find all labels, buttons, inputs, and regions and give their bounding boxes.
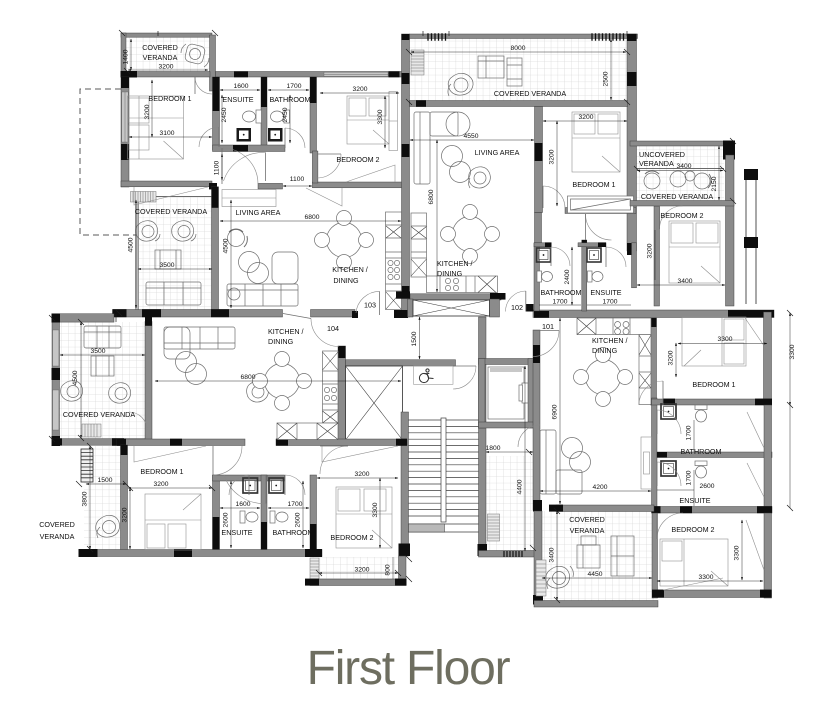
svg-text:4500: 4500 [128,237,135,252]
svg-text:8000: 8000 [511,45,526,52]
svg-text:3300: 3300 [372,502,379,517]
svg-text:3500: 3500 [91,348,106,355]
svg-text:6800: 6800 [428,189,435,204]
svg-text:LIVING AREA: LIVING AREA [475,148,520,157]
svg-text:BATHROOM: BATHROOM [270,95,311,104]
svg-text:COVERED VERANDA: COVERED VERANDA [494,89,566,98]
svg-text:DINING: DINING [333,276,359,285]
svg-text:VERANDA: VERANDA [639,159,674,168]
svg-text:LIVING AREA: LIVING AREA [236,208,281,217]
svg-text:2500: 2500 [603,71,610,86]
svg-text:104: 104 [327,324,339,333]
svg-text:BATHROOM: BATHROOM [273,528,314,537]
svg-text:ENSUITE: ENSUITE [590,288,621,297]
svg-text:KITCHEN /: KITCHEN / [268,327,304,336]
svg-text:1100: 1100 [290,176,305,183]
svg-text:6800: 6800 [305,214,320,221]
svg-text:COVERED VERANDA: COVERED VERANDA [63,410,135,419]
svg-text:3400: 3400 [549,547,556,562]
svg-text:ENSUITE: ENSUITE [221,528,252,537]
svg-text:DINING: DINING [592,346,618,355]
svg-text:1600: 1600 [234,83,249,90]
svg-text:3200: 3200 [159,64,174,71]
svg-text:KITCHEN /: KITCHEN / [592,336,628,345]
svg-text:6900: 6900 [552,404,559,419]
svg-text:KITCHEN /: KITCHEN / [332,265,368,274]
svg-text:3300: 3300 [718,336,733,343]
svg-text:800: 800 [385,564,392,575]
svg-text:3300: 3300 [699,574,714,581]
svg-text:BEDROOM 1: BEDROOM 1 [572,180,615,189]
svg-text:VERANDA: VERANDA [570,526,605,535]
svg-text:2600: 2600 [295,512,302,527]
svg-text:COVERED: COVERED [142,43,178,52]
svg-text:4200: 4200 [593,484,608,491]
svg-text:1700: 1700 [686,470,693,485]
svg-text:2450: 2450 [221,107,228,122]
svg-text:BEDROOM 1: BEDROOM 1 [692,380,735,389]
svg-text:6800: 6800 [241,374,256,381]
svg-text:1500: 1500 [98,477,113,484]
svg-text:3300: 3300 [377,109,384,124]
svg-text:2150: 2150 [711,176,718,191]
svg-text:COVERED VERANDA: COVERED VERANDA [641,192,713,201]
svg-text:3300: 3300 [734,545,741,560]
svg-text:ENSUITE: ENSUITE [679,496,710,505]
svg-text:BEDROOM 2: BEDROOM 2 [336,155,379,164]
svg-text:1500: 1500 [411,331,418,346]
svg-text:1700: 1700 [686,425,693,440]
svg-text:3500: 3500 [160,262,175,269]
svg-text:1700: 1700 [287,83,302,90]
svg-text:3400: 3400 [677,163,692,170]
svg-text:3100: 3100 [160,130,175,137]
svg-text:102: 102 [511,303,523,312]
svg-text:3200: 3200 [647,243,654,258]
svg-text:3200: 3200 [668,350,675,365]
svg-text:4500: 4500 [72,370,79,385]
svg-text:2450: 2450 [282,107,289,122]
svg-text:3200: 3200 [579,114,594,121]
svg-text:COVERED: COVERED [39,520,75,529]
svg-text:KITCHEN /: KITCHEN / [437,259,473,268]
svg-text:VERANDA: VERANDA [143,53,178,62]
svg-text:2600: 2600 [700,483,715,490]
svg-text:1700: 1700 [288,501,303,508]
svg-text:3200: 3200 [549,149,556,164]
svg-text:1700: 1700 [553,299,568,306]
svg-text:1600: 1600 [236,501,251,508]
svg-text:3800: 3800 [82,491,89,506]
svg-text:3400: 3400 [678,278,693,285]
svg-text:4500: 4500 [223,238,230,253]
svg-text:BATHROOM: BATHROOM [541,288,582,297]
svg-text:4550: 4550 [464,133,479,140]
svg-text:COVERED VERANDA: COVERED VERANDA [135,207,207,216]
svg-text:1400: 1400 [123,49,130,64]
svg-text:4400: 4400 [517,479,524,494]
svg-text:COVERED: COVERED [569,515,605,524]
svg-text:3300: 3300 [789,344,796,359]
svg-text:3200: 3200 [355,471,370,478]
svg-text:DINING: DINING [437,269,463,278]
svg-text:BEDROOM 2: BEDROOM 2 [671,525,714,534]
svg-text:2600: 2600 [223,512,230,527]
svg-text:4450: 4450 [588,571,603,578]
svg-text:First Floor: First Floor [307,642,511,695]
svg-text:3200: 3200 [144,104,151,119]
svg-text:1800: 1800 [486,445,501,452]
svg-text:3200: 3200 [355,567,370,574]
svg-text:1700: 1700 [603,299,618,306]
svg-text:ENSUITE: ENSUITE [222,95,253,104]
svg-text:BEDROOM 1: BEDROOM 1 [140,467,183,476]
svg-text:3200: 3200 [353,86,368,93]
svg-text:BEDROOM 1: BEDROOM 1 [148,94,191,103]
svg-text:BATHROOM: BATHROOM [681,447,722,456]
svg-text:3200: 3200 [122,507,129,522]
svg-text:3200: 3200 [154,481,169,488]
svg-text:DINING: DINING [268,337,294,346]
svg-text:VERANDA: VERANDA [40,532,75,541]
svg-text:1100: 1100 [214,161,221,176]
svg-text:101: 101 [542,322,554,331]
svg-text:BEDROOM 2: BEDROOM 2 [330,533,373,542]
svg-text:2400: 2400 [564,269,571,284]
svg-text:UNCOVERED: UNCOVERED [639,150,685,159]
svg-text:103: 103 [364,301,376,310]
svg-text:BEDROOM 2: BEDROOM 2 [660,211,703,220]
